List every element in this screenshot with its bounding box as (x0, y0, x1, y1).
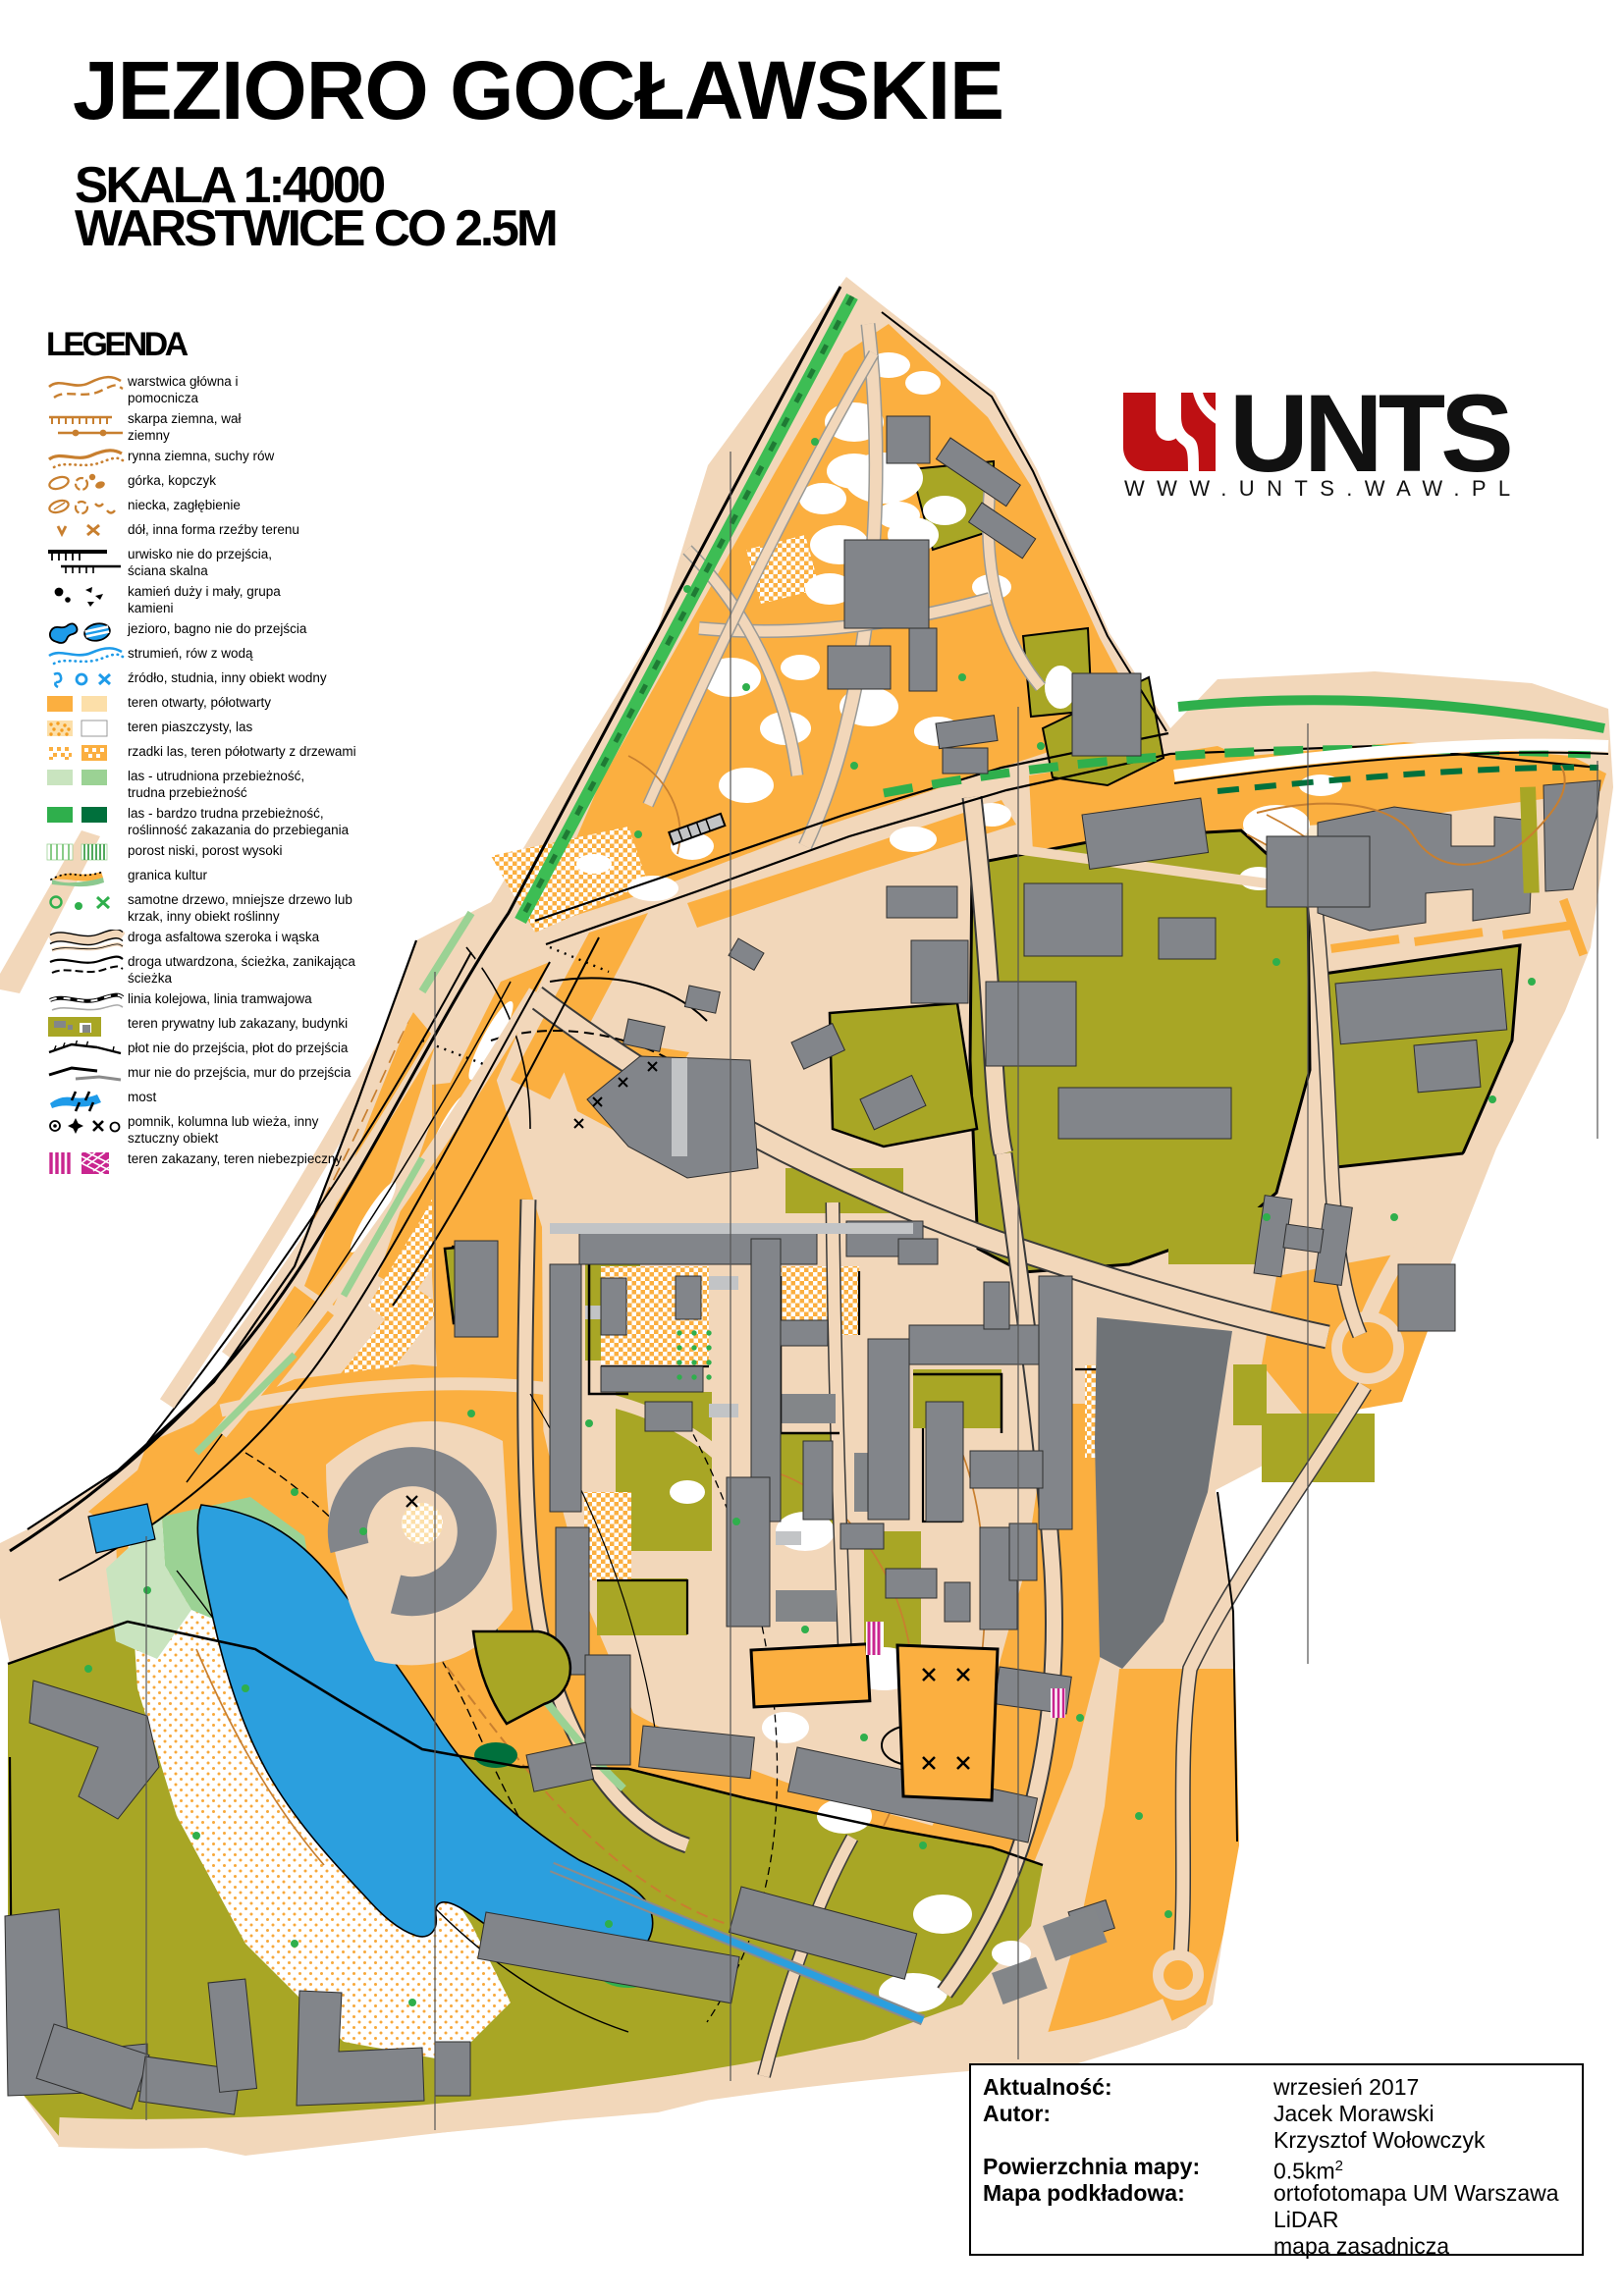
svg-text:WWW.UNTS.WAW.PL: WWW.UNTS.WAW.PL (1124, 476, 1523, 501)
